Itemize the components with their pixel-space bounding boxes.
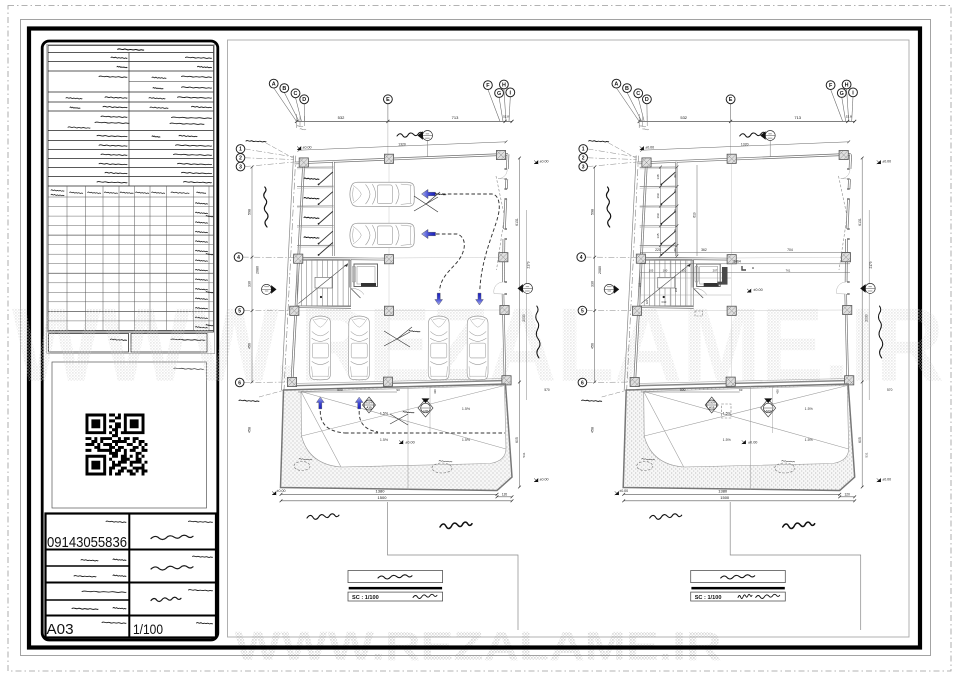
svg-text:605: 605 bbox=[515, 437, 519, 443]
svg-text:±0.00: ±0.00 bbox=[405, 441, 414, 445]
svg-text:598: 598 bbox=[248, 209, 252, 215]
svg-text:169: 169 bbox=[656, 193, 660, 198]
svg-text:330: 330 bbox=[248, 281, 252, 287]
svg-text:B: B bbox=[282, 86, 286, 92]
svg-text:1500: 1500 bbox=[378, 495, 388, 500]
svg-text:619: 619 bbox=[693, 212, 697, 218]
svg-text:2: 2 bbox=[239, 156, 242, 162]
svg-text:362: 362 bbox=[701, 248, 707, 252]
svg-text:1/100: 1/100 bbox=[133, 622, 163, 637]
svg-text:D: D bbox=[302, 97, 306, 103]
svg-text:704: 704 bbox=[787, 248, 793, 252]
svg-text:±0.00: ±0.00 bbox=[540, 478, 549, 482]
svg-text:456: 456 bbox=[248, 343, 252, 349]
svg-text:±0.00: ±0.00 bbox=[753, 288, 762, 292]
svg-text:E: E bbox=[386, 97, 390, 103]
svg-text:8.00%: 8.00% bbox=[365, 402, 373, 405]
svg-text:430: 430 bbox=[433, 389, 437, 394]
svg-text:A03: A03 bbox=[47, 621, 74, 638]
svg-text:208: 208 bbox=[674, 287, 678, 292]
svg-text:761: 761 bbox=[786, 269, 791, 273]
svg-text:105: 105 bbox=[638, 282, 642, 287]
svg-text:1.5%: 1.5% bbox=[380, 438, 389, 442]
svg-text:80: 80 bbox=[673, 209, 677, 212]
svg-text:1.5%: 1.5% bbox=[380, 412, 389, 416]
svg-text:D13: D13 bbox=[662, 300, 667, 304]
svg-text:80: 80 bbox=[673, 248, 677, 251]
svg-text:5: 5 bbox=[238, 308, 241, 314]
svg-text:2179: 2179 bbox=[527, 261, 531, 268]
svg-text:100: 100 bbox=[663, 269, 668, 273]
svg-text:1.5%: 1.5% bbox=[462, 407, 471, 411]
svg-text:220: 220 bbox=[655, 248, 661, 252]
svg-text:±0.00: ±0.00 bbox=[303, 146, 312, 150]
svg-text:1.5%: 1.5% bbox=[462, 438, 471, 442]
svg-text:C: C bbox=[294, 91, 298, 97]
svg-text:6131: 6131 bbox=[515, 218, 519, 226]
svg-text:1320: 1320 bbox=[398, 143, 406, 147]
svg-text:531: 531 bbox=[522, 452, 526, 457]
svg-text:6: 6 bbox=[238, 380, 241, 386]
svg-text:135: 135 bbox=[656, 233, 660, 238]
svg-text:110: 110 bbox=[682, 269, 687, 273]
svg-text:A: A bbox=[272, 82, 276, 88]
svg-text:A06: A06 bbox=[423, 409, 429, 413]
svg-text:±0.00: ±0.00 bbox=[277, 489, 286, 493]
svg-text:2030: 2030 bbox=[522, 314, 526, 322]
svg-text:570: 570 bbox=[544, 388, 550, 392]
svg-text:63: 63 bbox=[673, 189, 677, 192]
svg-text:1464: 1464 bbox=[733, 260, 741, 264]
svg-text:2080: 2080 bbox=[255, 266, 259, 274]
svg-text:80: 80 bbox=[673, 174, 677, 177]
svg-text:207: 207 bbox=[713, 269, 718, 273]
svg-text:3: 3 bbox=[239, 164, 242, 170]
svg-text:SC : 1/100: SC : 1/100 bbox=[352, 595, 379, 601]
svg-text:500: 500 bbox=[337, 388, 343, 392]
svg-text:93: 93 bbox=[396, 388, 400, 392]
svg-text:H: H bbox=[502, 82, 506, 88]
svg-text:G: G bbox=[497, 91, 501, 97]
svg-text:±0.00: ±0.00 bbox=[540, 160, 549, 164]
svg-text:105: 105 bbox=[649, 269, 654, 273]
svg-text:4: 4 bbox=[237, 255, 240, 261]
svg-text:532: 532 bbox=[338, 115, 345, 120]
svg-text:169: 169 bbox=[656, 213, 660, 218]
svg-text:A15: A15 bbox=[366, 405, 372, 409]
svg-text:320: 320 bbox=[645, 299, 649, 304]
svg-text:458: 458 bbox=[248, 427, 252, 433]
svg-text:120: 120 bbox=[502, 492, 508, 496]
svg-text:148: 148 bbox=[656, 174, 660, 179]
svg-text:79: 79 bbox=[673, 229, 677, 232]
svg-text:713: 713 bbox=[452, 115, 459, 120]
svg-text:52.8: 52.8 bbox=[503, 115, 509, 119]
svg-text:1: 1 bbox=[239, 147, 242, 153]
svg-text:1380: 1380 bbox=[376, 489, 386, 494]
svg-text:09143055836: 09143055836 bbox=[47, 534, 127, 551]
